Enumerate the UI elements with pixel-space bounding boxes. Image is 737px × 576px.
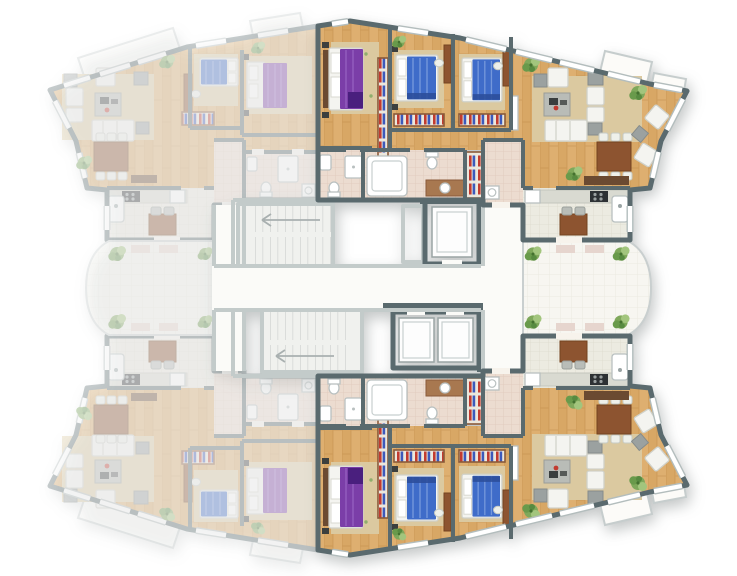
toilet [427, 157, 437, 169]
stove [590, 191, 608, 202]
washing-machine [485, 186, 499, 199]
desk [503, 50, 510, 86]
fridge [170, 190, 185, 203]
sink [247, 157, 257, 171]
hall-floor [214, 140, 244, 205]
sink [320, 155, 331, 170]
vent-shaft [403, 206, 423, 262]
elevator-south-2[interactable] [438, 308, 473, 362]
sink [612, 196, 628, 222]
coffee-table [95, 93, 121, 116]
bedroom-3 [459, 50, 510, 126]
dining-table [597, 142, 631, 171]
fridge [525, 190, 540, 203]
sideboard [131, 175, 157, 183]
shared-terrace-west [86, 241, 214, 335]
elevator-north[interactable] [425, 200, 479, 267]
stairwell-south[interactable] [262, 310, 362, 372]
washing-machine [302, 184, 315, 197]
toilet [328, 192, 340, 197]
bookshelf [394, 114, 444, 126]
floor-plan-canvas [0, 0, 737, 576]
shared-terrace-east [523, 241, 651, 335]
floor-plan [0, 0, 737, 576]
kitchen-table [149, 214, 176, 235]
desk [444, 45, 451, 83]
vanity-sink [440, 183, 450, 193]
sideboard [584, 176, 629, 185]
sofa [545, 120, 587, 141]
kitchen-table [560, 214, 587, 235]
stove [122, 191, 140, 202]
stairwell-north[interactable] [238, 204, 333, 266]
bookshelf [182, 112, 214, 125]
tall-bookshelf [466, 152, 482, 198]
toilet [260, 192, 272, 197]
headboard [323, 50, 329, 108]
entry-hall [485, 186, 499, 199]
building [50, 13, 687, 563]
dining-table [94, 142, 128, 171]
bookshelf [459, 114, 505, 126]
bookshelf [378, 58, 388, 158]
